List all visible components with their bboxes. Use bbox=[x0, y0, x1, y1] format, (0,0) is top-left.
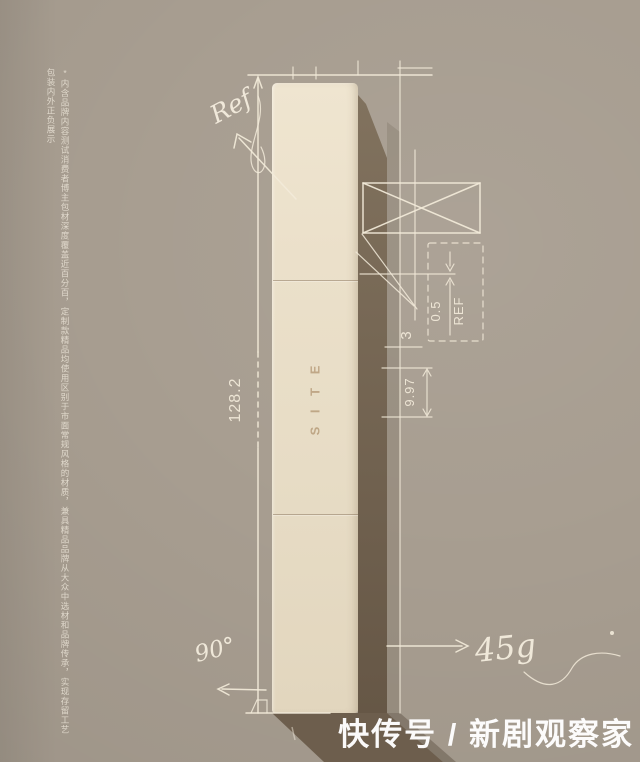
arrowhead-up-icon bbox=[423, 369, 431, 376]
ref-note-text: Ref bbox=[204, 82, 260, 130]
arrowhead-up-icon bbox=[446, 278, 454, 285]
cap-dimension: 9.97 bbox=[382, 368, 432, 417]
perpendicular-symbol-icon bbox=[251, 700, 267, 713]
wall-thickness-value: 0.5 bbox=[428, 300, 443, 321]
height-value: 128.2 bbox=[227, 377, 244, 422]
product-box-side bbox=[358, 95, 387, 713]
product-penumbra bbox=[387, 122, 400, 713]
flourish-dot bbox=[610, 631, 614, 635]
arrowhead-up-icon bbox=[254, 77, 262, 88]
ref-flourish bbox=[251, 96, 265, 173]
box-seam-bottom bbox=[273, 514, 358, 515]
brand-text: S I T E bbox=[308, 361, 323, 436]
arrowhead-upleft-icon bbox=[234, 134, 251, 148]
wall-ref-label: REF bbox=[451, 297, 466, 326]
weight-flourish bbox=[524, 653, 620, 684]
shadow-tick bbox=[292, 727, 295, 740]
detail-callout: 0.5 REF bbox=[428, 243, 483, 341]
arrowhead-down-icon bbox=[446, 264, 454, 271]
design-sheet: *内含品牌内容测试消费者博主包材深度覆盖近百分百，定制款精品均使用区别于市面常规… bbox=[0, 0, 640, 762]
height-dimension: 128.2 bbox=[227, 77, 262, 713]
weight-annotation: 45g bbox=[387, 626, 620, 685]
gap-dimension: 3 bbox=[385, 330, 422, 347]
watermark: 快传号 / 新剧观察家 bbox=[338, 709, 634, 754]
angle-value: 90° bbox=[192, 633, 238, 668]
product-box-front: S I T E bbox=[272, 83, 358, 713]
weight-value: 45g bbox=[472, 626, 538, 670]
box-seam-top bbox=[273, 280, 358, 281]
cap-height-value: 9.97 bbox=[402, 377, 417, 406]
gap-value: 3 bbox=[398, 330, 415, 339]
disclaimer-text: *内含品牌内容测试消费者博主包材深度覆盖近百分百，定制款精品均使用区别于市面常规… bbox=[44, 68, 72, 740]
arrowhead-right-icon bbox=[456, 640, 468, 652]
crossed-box-sketch bbox=[356, 150, 480, 320]
arrowhead-left-icon bbox=[218, 684, 229, 695]
arrowhead-down-icon bbox=[423, 409, 431, 416]
